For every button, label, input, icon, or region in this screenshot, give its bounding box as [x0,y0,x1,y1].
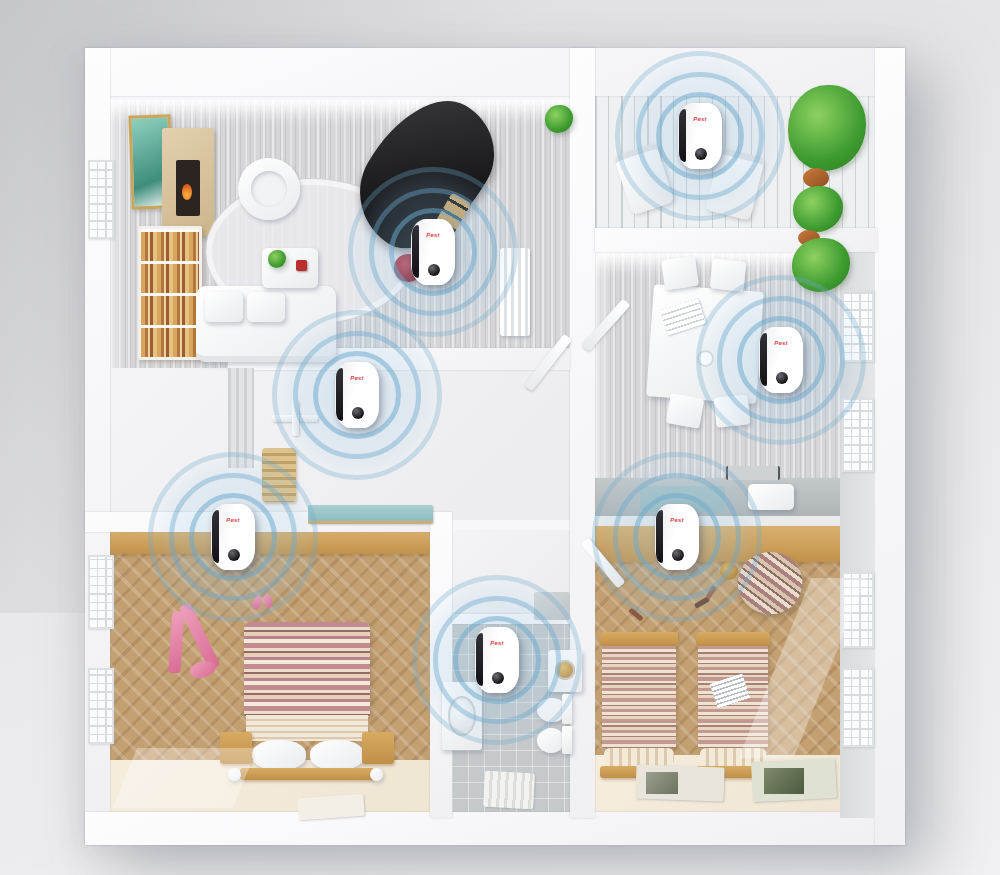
device-side-stripe [679,109,686,162]
speaker-icon [428,264,440,276]
scene: PestPestPestPestPestPestPest [0,0,1000,875]
device-side-stripe [656,510,663,563]
speaker-icon [776,372,788,384]
device-side-stripe [412,225,419,278]
device-side-stripe [336,368,343,421]
device-body: Pest [655,504,699,570]
devices-layer: PestPestPestPestPestPestPest [0,0,1000,875]
device-body: Pest [211,504,255,570]
device-side-stripe [212,510,219,563]
speaker-icon [352,407,364,419]
speaker-icon [672,549,684,561]
device-body: Pest [759,327,803,393]
device-body: Pest [475,627,519,693]
device-body: Pest [411,219,455,285]
speaker-icon [492,672,504,684]
speaker-icon [695,148,707,160]
device-body: Pest [678,103,722,169]
device-body: Pest [335,362,379,428]
speaker-icon [228,549,240,561]
device-side-stripe [760,333,767,386]
device-side-stripe [476,633,483,686]
